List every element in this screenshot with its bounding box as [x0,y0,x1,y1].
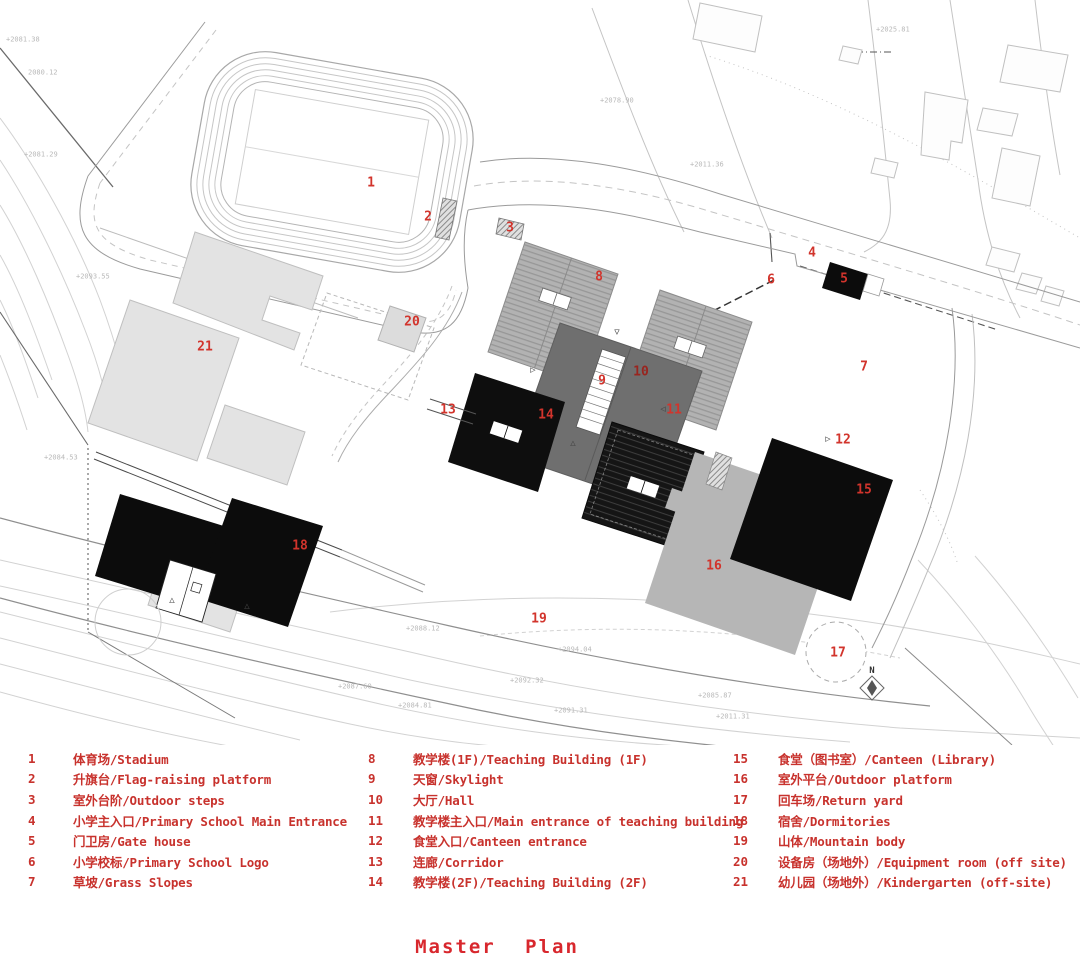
legend-number: 17 [733,792,778,807]
legend-column: 8教学楼(1F)/Teaching Building (1F)9天窗/Skyli… [368,748,728,892]
legend-label: 教学楼主入口/Main entrance of teaching buildin… [413,811,743,830]
legend-number: 4 [28,813,73,828]
legend-label: 宿舍/Dormitories [778,811,891,830]
legend-number: 2 [28,771,73,786]
legend-label: 回车场/Return yard [778,790,903,809]
plan-label-6: 6 [767,274,775,287]
legend-row: 19山体/Mountain body [733,830,1078,851]
legend-number: 3 [28,792,73,807]
elevation-label: +2084.53 [44,455,78,462]
legend-label: 教学楼(2F)/Teaching Building (2F) [413,872,648,891]
plan-label-19: 19 [531,613,547,626]
legend-number: 11 [368,813,413,828]
north-arrow: N [860,666,884,700]
elevation-label: +2025.81 [876,27,910,34]
plan-title: Master Plan [0,936,994,958]
plan-label-11: 11 [666,404,682,417]
elevation-label: +2084.81 [398,703,432,710]
legend-label: 大厅/Hall [413,790,474,809]
legend-number: 19 [733,833,778,848]
legend-label: 天窗/Skylight [413,769,504,788]
elevation-label: +2011.31 [716,714,750,721]
legend-row: 3室外台阶/Outdoor steps [28,789,363,810]
plan-label-12: 12 [835,434,851,447]
legend-label: 门卫房/Gate house [73,831,190,850]
entrance-marker: △ [244,603,249,612]
entrance-marker: ▷ [825,436,830,445]
legend-number: 10 [368,792,413,807]
legend-row: 13连廊/Corridor [368,851,728,872]
plan-label-17: 17 [830,647,846,660]
elevation-label: +2081.29 [24,152,58,159]
legend-row: 4小学主入口/Primary School Main Entrance [28,810,363,831]
legend-label: 教学楼(1F)/Teaching Building (1F) [413,749,648,768]
equipment-room [301,293,434,400]
legend-number: 9 [368,771,413,786]
plan-label-16: 16 [706,560,722,573]
plan-label-13: 13 [440,404,456,417]
context-buildings [693,3,1068,306]
plan-label-14: 14 [538,409,554,422]
elevation-label: +2094.04 [558,647,592,654]
site-plan-drawing: N [0,0,1080,745]
legend-number: 7 [28,874,73,889]
legend-column: 15食堂（图书室）/Canteen (Library)16室外平台/Outdoo… [733,748,1078,892]
legend-row: 11教学楼主入口/Main entrance of teaching build… [368,810,728,831]
legend-label: 连廊/Corridor [413,852,504,871]
legend-row: 8教学楼(1F)/Teaching Building (1F) [368,748,728,769]
elevation-label: +2087.60 [338,684,372,691]
legend-number: 13 [368,854,413,869]
legend-column: 1体育场/Stadium2升旗台/Flag-raising platform3室… [28,748,363,892]
gate-house [822,262,884,300]
elevation-label: +2092.32 [510,678,544,685]
north-label: N [869,666,874,676]
site-plan: N 123456789101112131415161718192021 ▽▷△◁… [0,0,1080,745]
plan-label-5: 5 [840,273,848,286]
legend-number: 21 [733,874,778,889]
plan-label-1: 1 [367,177,375,190]
elevation-label: +2088.12 [406,626,440,633]
plan-label-15: 15 [856,484,872,497]
legend-label: 小学主入口/Primary School Main Entrance [73,811,347,830]
entrance-marker: ▽ [614,329,619,338]
legend-label: 山体/Mountain body [778,831,905,850]
legend-number: 1 [28,751,73,766]
legend: 1体育场/Stadium2升旗台/Flag-raising platform3室… [0,748,1080,898]
legend-label: 室外台阶/Outdoor steps [73,790,225,809]
plan-label-9: 9 [598,375,606,388]
legend-row: 16室外平台/Outdoor platform [733,769,1078,790]
elevation-label: +2011.36 [690,162,724,169]
elevation-label: +2093.55 [76,274,110,281]
elevation-label: +2078.90 [600,98,634,105]
entrance-marker: △ [570,440,575,449]
legend-number: 6 [28,854,73,869]
legend-number: 12 [368,833,413,848]
legend-row: 14教学楼(2F)/Teaching Building (2F) [368,872,728,893]
elevation-label: +2091.31 [554,708,588,715]
legend-label: 幼儿园（场地外）/Kindergarten (off-site) [778,872,1052,891]
legend-row: 20设备房（场地外）/Equipment room (off site) [733,851,1078,872]
legend-row: 1体育场/Stadium [28,748,363,769]
turnaround-circle [95,589,161,655]
legend-label: 草坡/Grass Slopes [73,872,193,891]
elevation-label: +2081.38 [6,37,40,44]
plan-label-20: 20 [404,316,420,329]
legend-row: 12食堂入口/Canteen entrance [368,830,728,851]
master-plan-sheet: N 123456789101112131415161718192021 ▽▷△◁… [0,0,1080,977]
legend-row: 21幼儿园（场地外）/Kindergarten (off-site) [733,872,1078,893]
legend-row: 15食堂（图书室）/Canteen (Library) [733,748,1078,769]
plan-label-10: 10 [633,366,649,379]
entrance-marker: ▷ [530,367,535,376]
legend-row: 6小学校标/Primary School Logo [28,851,363,872]
elevation-label: +2085.87 [698,693,732,700]
legend-row: 17回车场/Return yard [733,789,1078,810]
plan-label-7: 7 [860,361,868,374]
legend-label: 小学校标/Primary School Logo [73,852,269,871]
legend-label: 升旗台/Flag-raising platform [73,769,271,788]
legend-label: 食堂入口/Canteen entrance [413,831,587,850]
plan-label-3: 3 [506,222,514,235]
elevation-label: 2080.12 [28,70,58,77]
plan-label-8: 8 [595,271,603,284]
legend-number: 20 [733,854,778,869]
entrance-marker: ◁ [660,406,665,415]
plan-label-2: 2 [424,211,432,224]
legend-number: 5 [28,833,73,848]
legend-number: 14 [368,874,413,889]
legend-number: 18 [733,813,778,828]
legend-number: 8 [368,751,413,766]
legend-row: 2升旗台/Flag-raising platform [28,769,363,790]
legend-label: 设备房（场地外）/Equipment room (off site) [778,852,1067,871]
legend-number: 16 [733,771,778,786]
legend-row: 10大厅/Hall [368,789,728,810]
legend-row: 7草坡/Grass Slopes [28,872,363,893]
legend-label: 食堂（图书室）/Canteen (Library) [778,749,996,768]
legend-label: 体育场/Stadium [73,749,169,768]
entrance-marker: △ [169,597,174,606]
legend-row: 5门卫房/Gate house [28,830,363,851]
plan-label-21: 21 [197,341,213,354]
plan-label-4: 4 [808,247,816,260]
legend-number: 15 [733,751,778,766]
legend-label: 室外平台/Outdoor platform [778,769,952,788]
legend-row: 9天窗/Skylight [368,769,728,790]
legend-row: 18宿舍/Dormitories [733,810,1078,831]
plan-label-18: 18 [292,540,308,553]
